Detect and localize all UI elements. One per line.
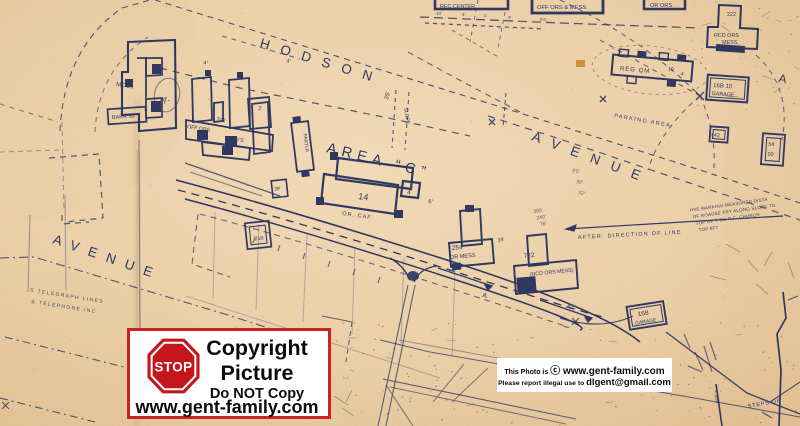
svg-text:STOP: STOP <box>154 360 192 375</box>
